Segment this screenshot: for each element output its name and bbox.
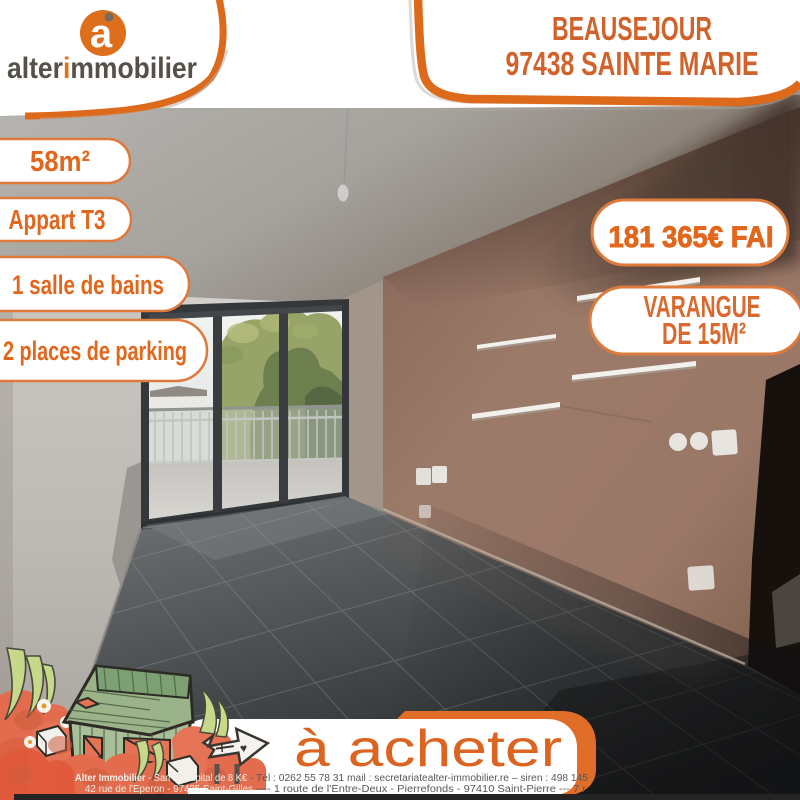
svg-text:97438 SAINTE MARIE: 97438 SAINTE MARIE (506, 45, 759, 82)
svg-text:1 salle de bains: 1 salle de bains (12, 270, 164, 300)
svg-text:♥: ♥ (239, 741, 247, 756)
svg-text:---- 1 route de l'Entre-Deux -: ---- 1 route de l'Entre-Deux - Pierrefon… (256, 784, 587, 795)
svg-text:181 365€ FAI: 181 365€ FAI (609, 221, 774, 254)
svg-text:42 rue de l'Eperon - 97435 Sai: 42 rue de l'Eperon - 97435 Saint-Gilles (85, 784, 253, 795)
svg-text:alterimmobilier: alterimmobilier (7, 52, 197, 85)
svg-text:58m²: 58m² (30, 146, 90, 178)
svg-text:- Tél : 0262 55 78 31 mail : s: - Tél : 0262 55 78 31 mail : secretariat… (250, 773, 588, 784)
svg-text:Alter Immobilier - Sarl au cap: Alter Immobilier - Sarl au capital de 8 … (75, 773, 247, 784)
svg-text:BEAUSEJOUR: BEAUSEJOUR (552, 10, 712, 47)
svg-text:2 places de parking: 2 places de parking (3, 336, 187, 366)
svg-text:à acheter: à acheter (294, 720, 562, 778)
svg-text:Appart T3: Appart T3 (9, 204, 106, 235)
svg-text:DE 15M²: DE 15M² (662, 316, 746, 351)
